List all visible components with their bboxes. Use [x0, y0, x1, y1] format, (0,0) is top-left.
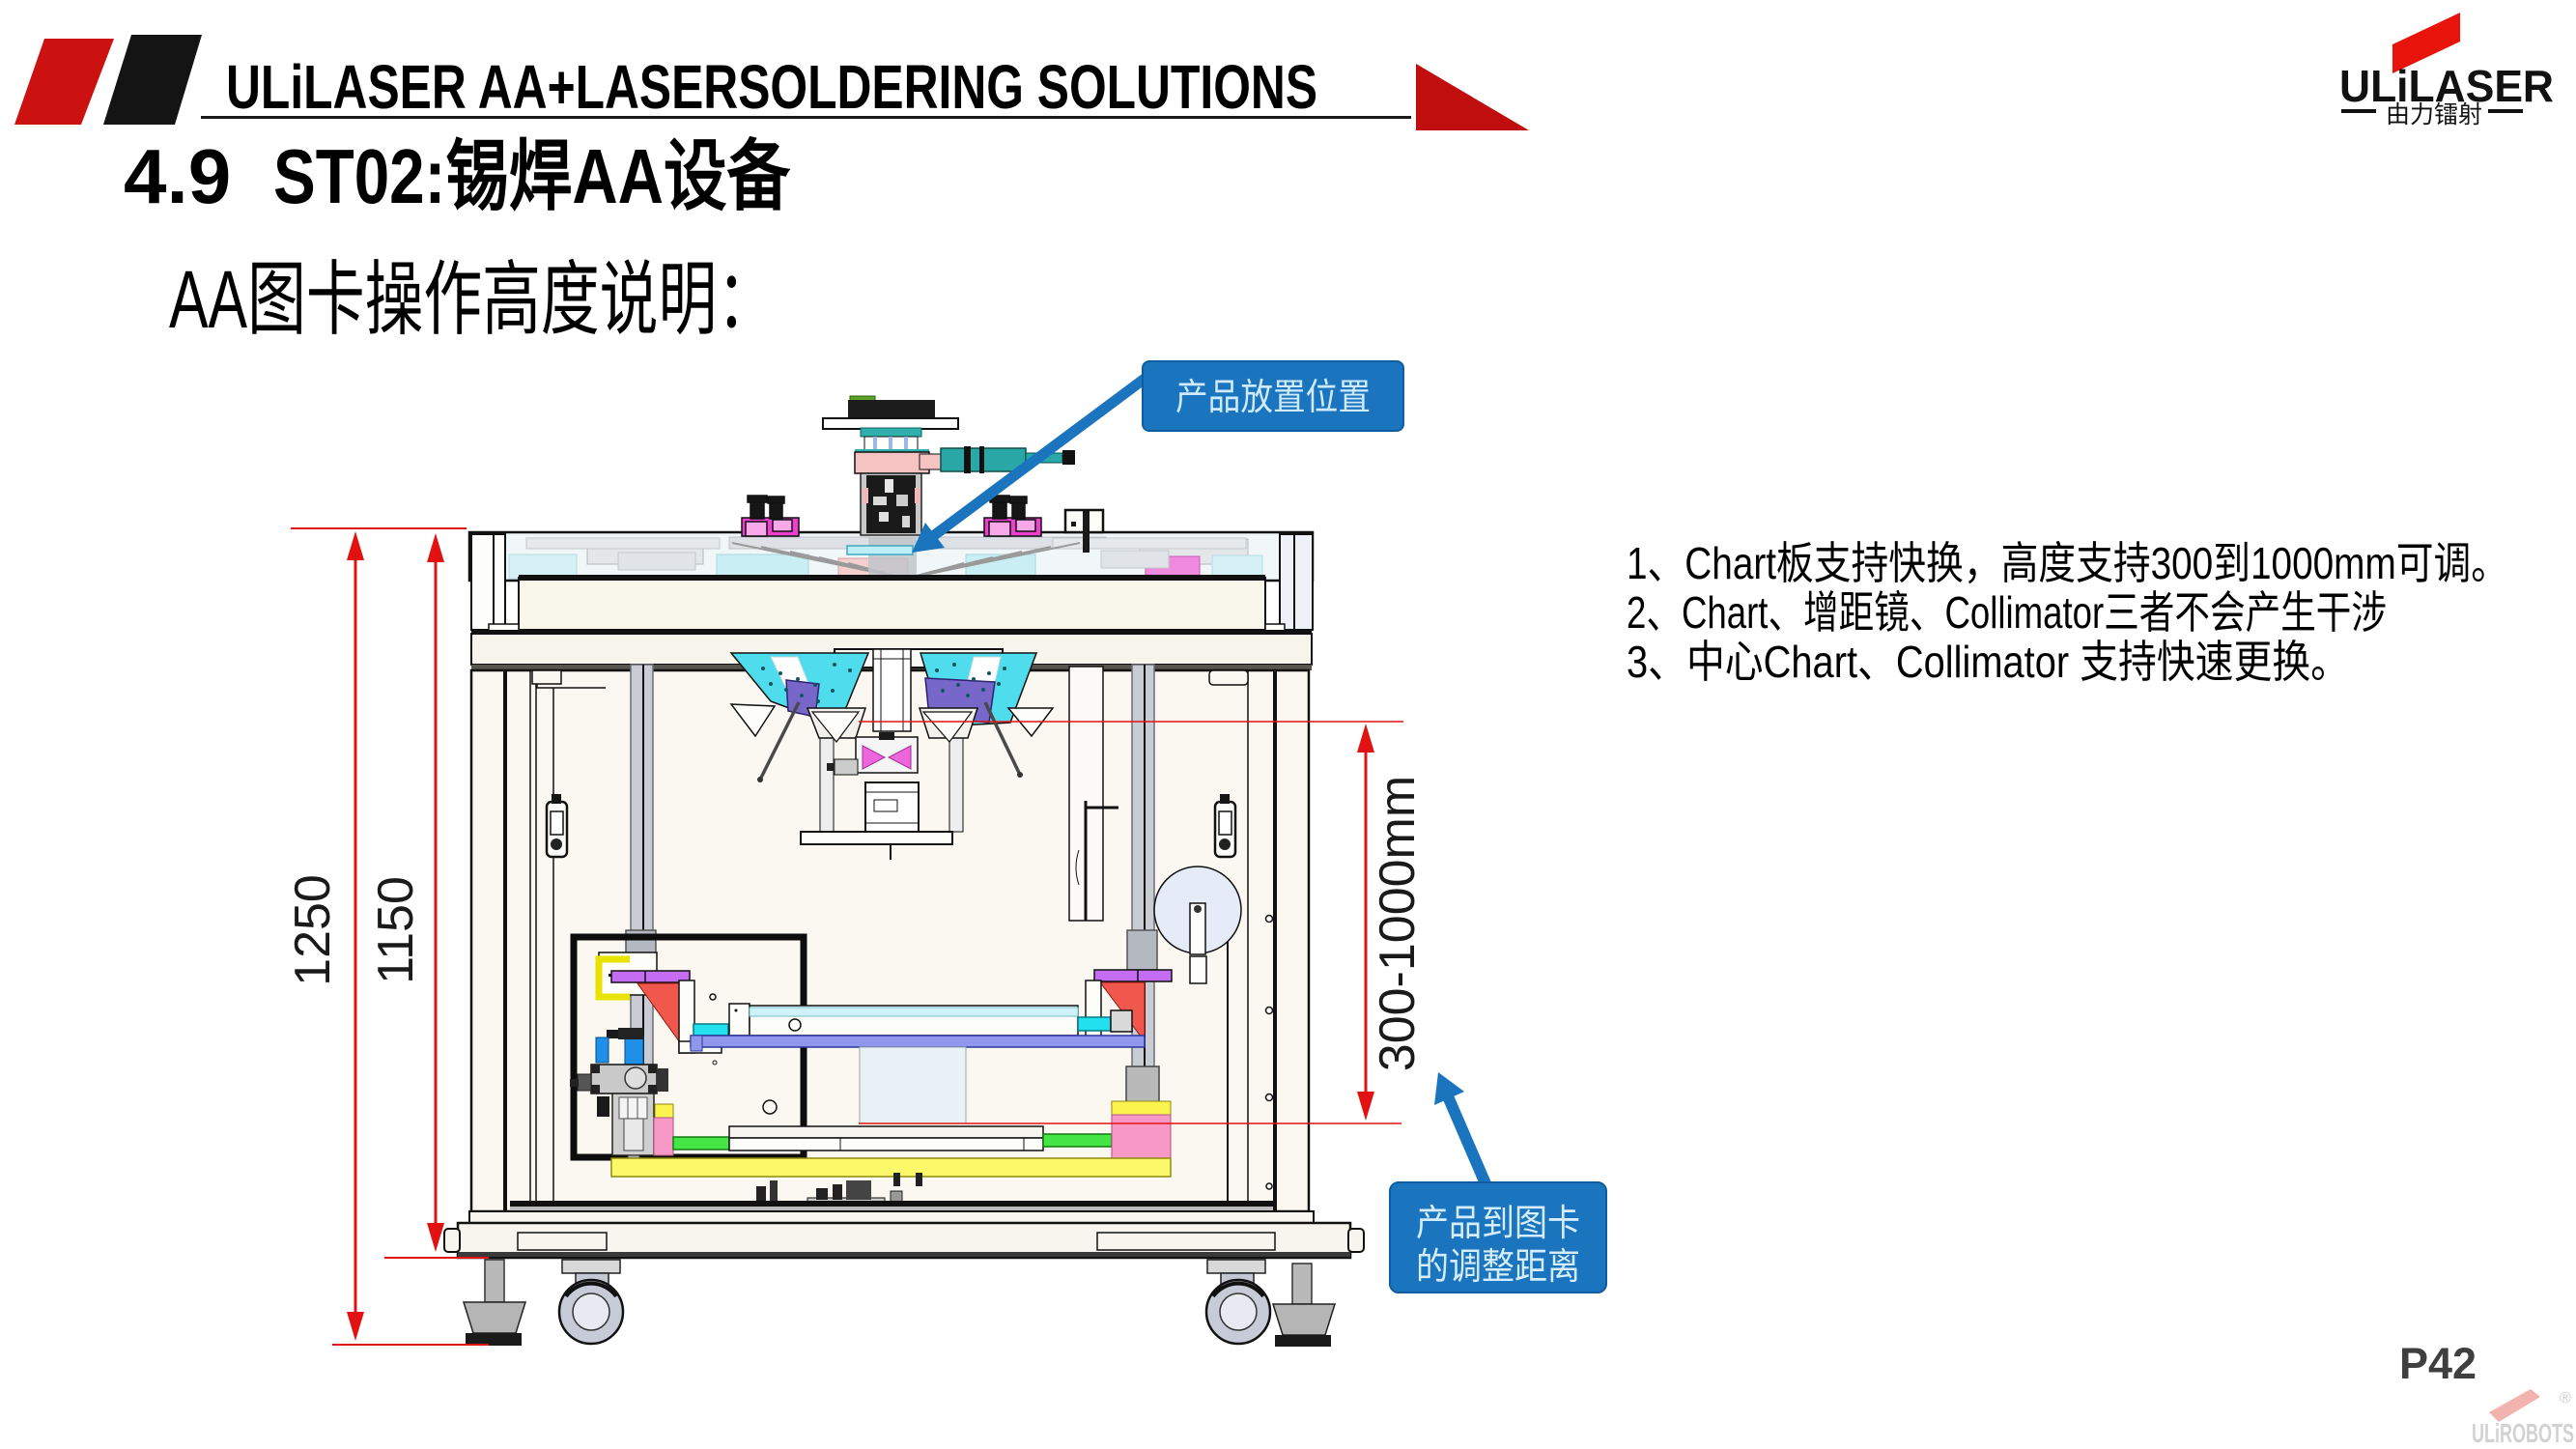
svg-text:ULiLASER AA+LASERSOLDERING SOL: ULiLASER AA+LASERSOLDERING SOLUTIONS — [226, 52, 1317, 122]
svg-text:4.9: 4.9 — [124, 133, 231, 219]
svg-text:1150: 1150 — [368, 876, 424, 984]
svg-text:3、中心Chart、Collimator 支持快速更换。: 3、中心Chart、Collimator 支持快速更换。 — [1627, 637, 2349, 687]
svg-text:2、Chart、增距镜、Collimator三者不会产生干涉: 2、Chart、增距镜、Collimator三者不会产生干涉 — [1627, 587, 2387, 638]
svg-text:由力镭射: 由力镭射 — [2386, 101, 2482, 128]
svg-text:ST02:锡焊AA设备: ST02:锡焊AA设备 — [273, 133, 791, 219]
svg-text:®: ® — [2560, 1390, 2571, 1406]
svg-text:1250: 1250 — [285, 874, 341, 986]
svg-text:产品到图卡: 产品到图卡 — [1416, 1204, 1580, 1244]
svg-text:AA图卡操作高度说明：: AA图卡操作高度说明： — [169, 254, 776, 345]
svg-text:1、Chart板支持快换，高度支持300到1000mm可调。: 1、Chart板支持快换，高度支持300到1000mm可调。 — [1627, 538, 2508, 588]
svg-text:300-1000mm: 300-1000mm — [1370, 776, 1426, 1071]
svg-text:的调整距离: 的调整距离 — [1416, 1247, 1580, 1288]
svg-text:ULiROBOTS: ULiROBOTS — [2472, 1418, 2574, 1448]
svg-text:产品放置位置: 产品放置位置 — [1175, 378, 1371, 418]
svg-text:P42: P42 — [2399, 1339, 2477, 1388]
